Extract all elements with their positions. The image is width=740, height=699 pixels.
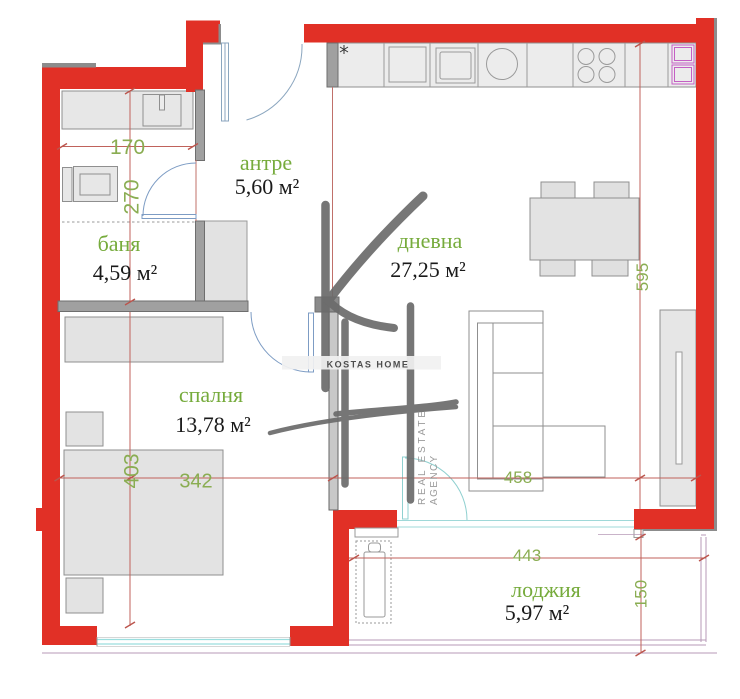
- svg-text:баня: баня: [98, 231, 141, 256]
- svg-text:170: 170: [110, 136, 145, 159]
- svg-text:270: 270: [121, 179, 144, 214]
- svg-text:342: 342: [179, 471, 212, 493]
- svg-text:4,59 м²: 4,59 м²: [93, 260, 158, 285]
- svg-text:спалня: спалня: [179, 382, 243, 407]
- svg-text:13,78 м²: 13,78 м²: [175, 412, 251, 437]
- svg-text:595: 595: [633, 263, 652, 291]
- svg-text:150: 150: [632, 580, 651, 608]
- svg-text:лоджия: лоджия: [511, 577, 581, 602]
- svg-text:AGENCY: AGENCY: [429, 454, 440, 505]
- svg-text:443: 443: [513, 546, 541, 565]
- svg-text:REAL ESTATE: REAL ESTATE: [417, 408, 428, 505]
- svg-text:дневна: дневна: [398, 228, 463, 253]
- svg-text:5,60 м²: 5,60 м²: [235, 174, 300, 199]
- svg-text:5,97 м²: 5,97 м²: [505, 600, 570, 625]
- svg-text:KOSTAS HOME: KOSTAS HOME: [327, 360, 410, 370]
- svg-text:458: 458: [504, 468, 532, 487]
- svg-text:антре: антре: [240, 150, 292, 175]
- svg-text:403: 403: [121, 453, 144, 488]
- svg-text:27,25 м²: 27,25 м²: [390, 257, 466, 282]
